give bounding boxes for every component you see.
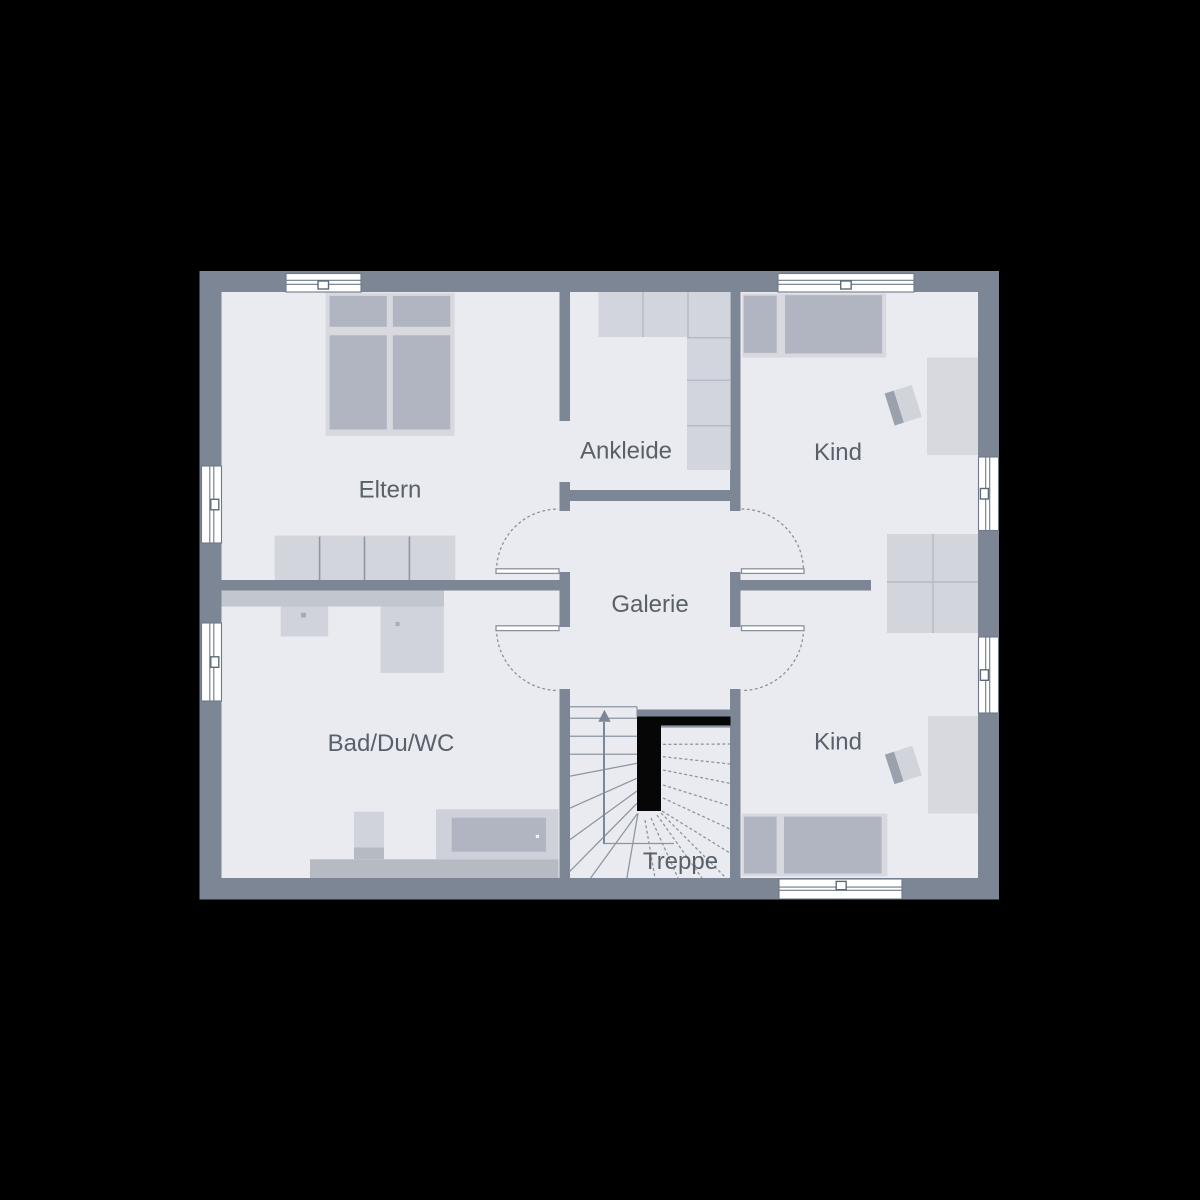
svg-text:Kind: Kind [814, 439, 862, 466]
svg-text:Eltern: Eltern [359, 477, 422, 504]
svg-text:Bad/Du/WC: Bad/Du/WC [328, 730, 455, 757]
svg-text:Ankleide: Ankleide [580, 438, 672, 465]
svg-text:Kind: Kind [814, 729, 862, 756]
svg-text:Galerie: Galerie [611, 591, 688, 618]
svg-text:Treppe: Treppe [643, 848, 718, 875]
